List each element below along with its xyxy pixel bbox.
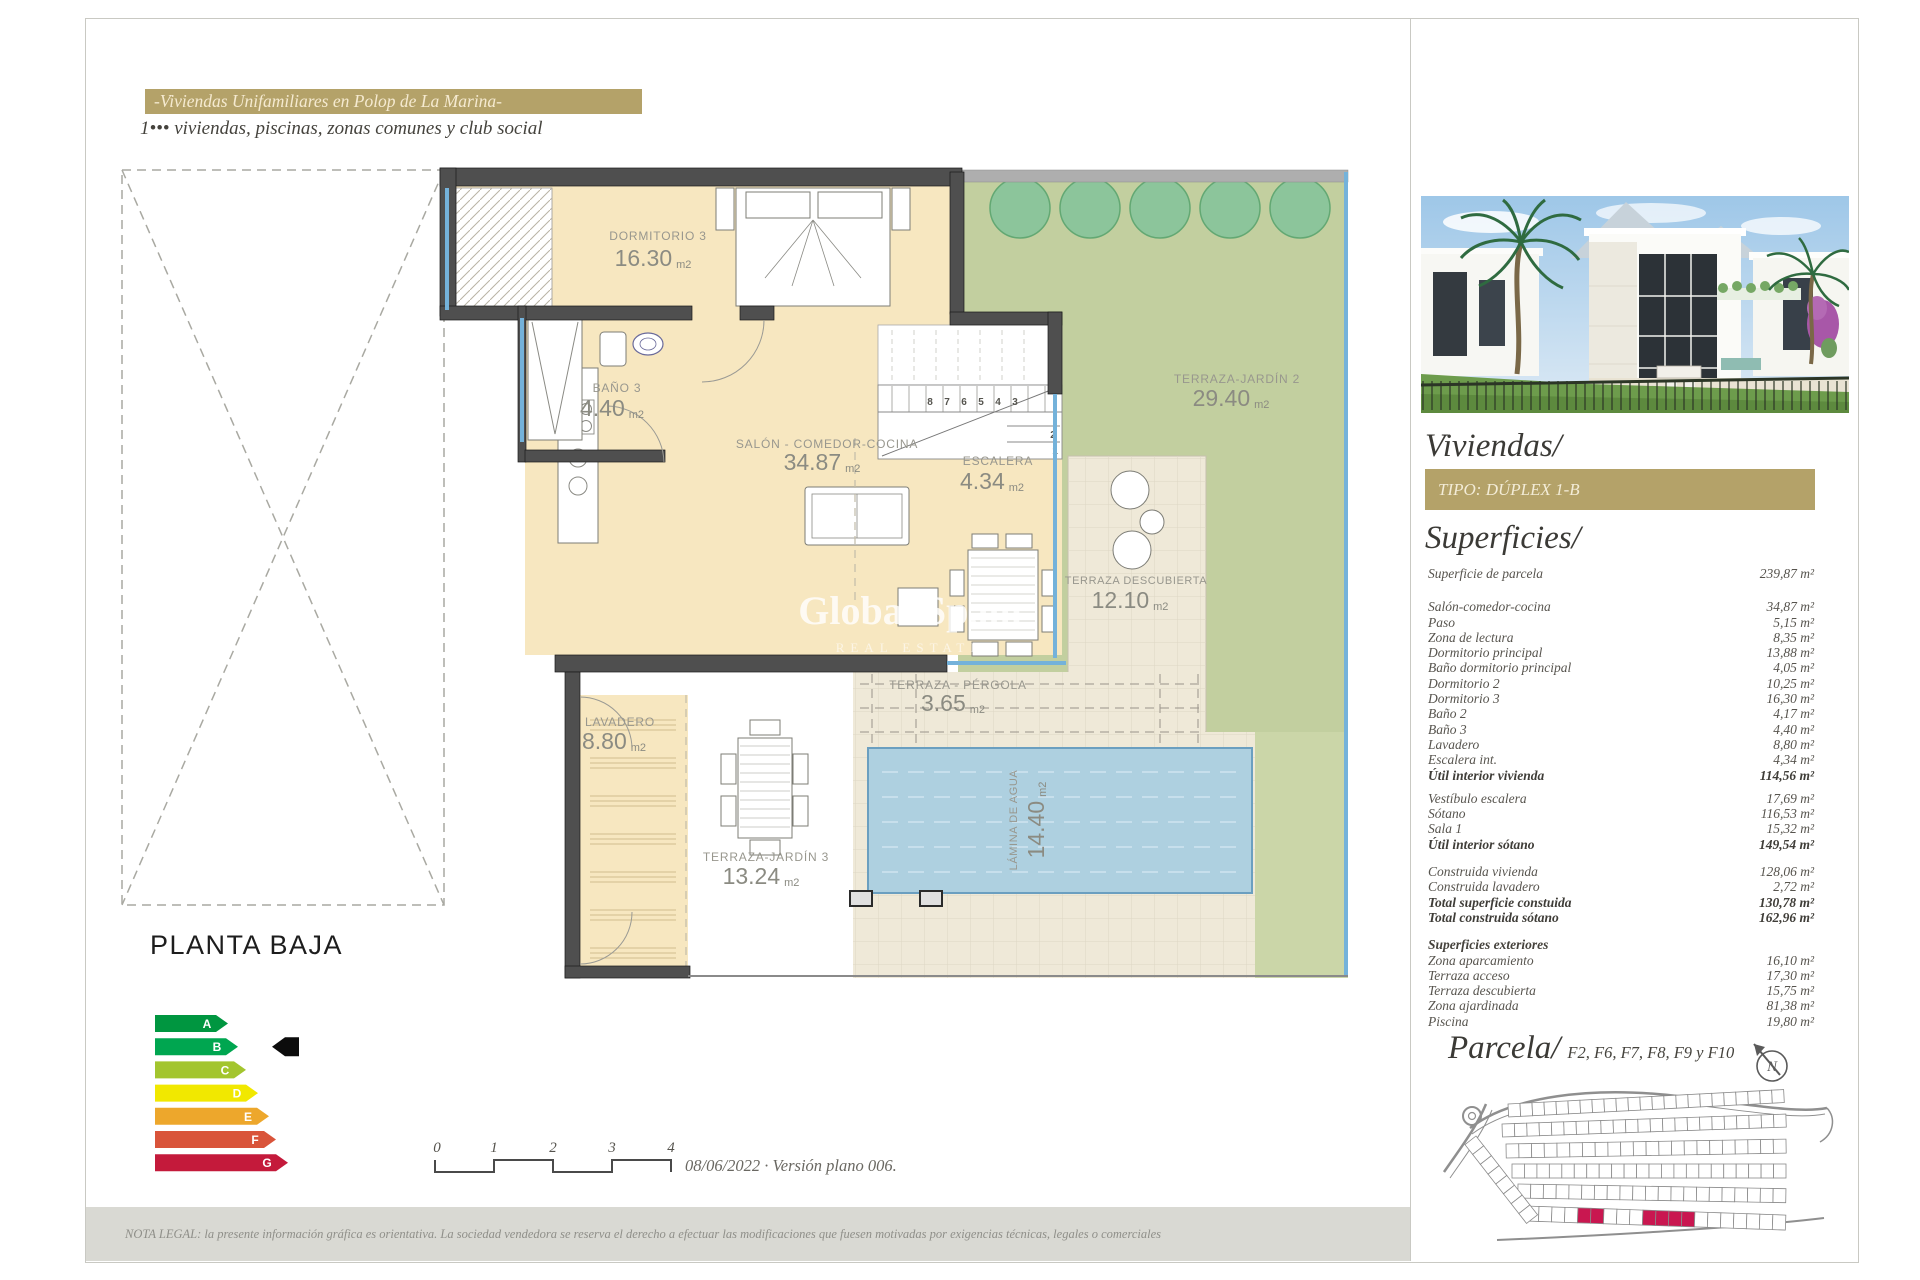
- plot-cell: [1588, 1121, 1601, 1134]
- plot-cell: [1607, 1186, 1620, 1200]
- surface-value: 19,80 m²: [1766, 1014, 1814, 1029]
- stair-number: 6: [961, 397, 967, 408]
- plot-cell: [1696, 1187, 1709, 1201]
- plot-cell: [1761, 1115, 1774, 1128]
- plot-cell: [1759, 1214, 1773, 1229]
- room-label: BAÑO 3: [593, 381, 642, 395]
- plot-cell: [1580, 1100, 1593, 1114]
- plot-cell: [1519, 1144, 1532, 1158]
- plot-band: [1502, 1114, 1786, 1137]
- stair-number: 7: [944, 397, 950, 408]
- surface-row: Vestíbulo escalera17,69 m²: [1428, 791, 1814, 806]
- energy-letter: C: [221, 1063, 230, 1077]
- surface-value: 116,53 m²: [1761, 806, 1814, 821]
- surface-row: Total superficie constuida130,78 m²: [1428, 895, 1814, 910]
- surface-label: Construida lavadero: [1428, 879, 1540, 894]
- surface-row: Sala 115,32 m²: [1428, 821, 1814, 836]
- plot-cell-highlighted: [1668, 1211, 1682, 1226]
- plot-cell: [1524, 1164, 1536, 1178]
- plot-cell: [1624, 1164, 1636, 1178]
- plot-cell: [1556, 1185, 1569, 1199]
- plot-cell: [1633, 1142, 1646, 1156]
- plot-cell: [1638, 1119, 1651, 1132]
- plot-cell: [1773, 1139, 1786, 1153]
- surface-value: 17,69 m²: [1766, 791, 1814, 806]
- plot-cell: [1676, 1095, 1689, 1109]
- plot-cell: [1722, 1140, 1735, 1154]
- garden-trees: [990, 178, 1330, 238]
- plot-cell: [1736, 1115, 1749, 1128]
- plot-cell: [1709, 1187, 1722, 1201]
- plot-cell: [1604, 1098, 1617, 1112]
- pergola-post: [920, 891, 942, 906]
- plot-cell: [1661, 1164, 1673, 1178]
- plot-cell-highlighted: [1655, 1211, 1669, 1226]
- svg-text:Global Spain: Global Spain: [798, 588, 1021, 633]
- plot-cell: [1502, 1124, 1515, 1137]
- surface-value: 16,10 m²: [1766, 953, 1814, 968]
- plot-cell: [1582, 1185, 1595, 1199]
- plot-cell: [1543, 1184, 1556, 1198]
- surface-value: 4,05 m²: [1773, 660, 1814, 675]
- villa-render-image: [1421, 196, 1849, 413]
- plot-cell: [1772, 1090, 1785, 1104]
- room-label: LÁMINA DE AGUA: [1007, 770, 1020, 871]
- plot-cell: [1687, 1117, 1700, 1130]
- stair-number: 5: [978, 397, 984, 408]
- energy-letter: A: [203, 1017, 212, 1031]
- surface-value: 239,87 m²: [1760, 566, 1814, 581]
- superficies-title: Superficies/: [1425, 520, 1581, 557]
- stair-number: 3: [1012, 397, 1018, 408]
- energy-letter: E: [244, 1110, 252, 1124]
- plot-cell: [1574, 1164, 1586, 1178]
- plot-cell: [1532, 1102, 1545, 1116]
- plot-cell-highlighted: [1681, 1211, 1695, 1226]
- surface-group-header: Superficies exteriores: [1428, 937, 1814, 952]
- plot-cell: [1712, 1116, 1725, 1129]
- plot-cell: [1625, 1119, 1638, 1132]
- plot-cell: [1570, 1143, 1583, 1157]
- room-label: TERRAZA-JARDÍN 2: [1174, 371, 1300, 386]
- surface-label: Zona de lectura: [1428, 630, 1514, 645]
- version-caption: 08/06/2022 · Versión plano 006.: [685, 1156, 897, 1175]
- surface-label: Útil interior sótano: [1428, 837, 1535, 852]
- wardrobe: [456, 188, 552, 312]
- surface-row: Dormitorio 210,25 m²: [1428, 676, 1814, 691]
- room-label: TERRAZA DESCUBIERTA: [1065, 575, 1207, 587]
- plot-cell: [1707, 1212, 1721, 1227]
- plot-cell: [1688, 1094, 1701, 1108]
- surface-label: Baño dormitorio principal: [1428, 660, 1571, 675]
- surface-row: Terraza acceso17,30 m²: [1428, 968, 1814, 983]
- surface-value: 149,54 m²: [1759, 837, 1814, 852]
- plot-cell: [1684, 1141, 1697, 1155]
- plot-cell: [1711, 1164, 1723, 1178]
- energy-letter: F: [251, 1133, 258, 1147]
- plot-cell: [1551, 1122, 1564, 1135]
- energy-letter: D: [233, 1087, 242, 1101]
- surface-label: Dormitorio 2: [1428, 676, 1500, 691]
- plot-cell: [1761, 1164, 1773, 1178]
- surface-value: 81,38 m²: [1766, 998, 1814, 1013]
- plot-cell: [1557, 1143, 1570, 1157]
- plot-cell: [1599, 1164, 1611, 1178]
- surface-row: Piscina19,80 m²: [1428, 1014, 1814, 1029]
- plot-cell: [1629, 1210, 1643, 1225]
- energy-arrow-B: [155, 1038, 238, 1055]
- surface-label: Paso: [1428, 615, 1455, 630]
- parcela-heading: Parcela/ F2, F6, F7, F8, F9 y F10: [1448, 1030, 1734, 1067]
- plot-cell: [1640, 1096, 1653, 1110]
- plot-cell: [1724, 1092, 1737, 1106]
- scale-tick: 1: [490, 1140, 498, 1156]
- plot-cell-highlighted: [1590, 1208, 1604, 1223]
- pergola-post: [850, 891, 872, 906]
- plot-cell: [1735, 1140, 1748, 1154]
- scale-tick: 0: [433, 1140, 441, 1156]
- plot-cell: [1564, 1207, 1578, 1222]
- energy-arrow-A: [155, 1015, 228, 1032]
- plot-cell: [1539, 1122, 1552, 1135]
- scale-tick: 4: [667, 1140, 675, 1156]
- plot-cell: [1694, 1212, 1708, 1227]
- plot-cell: [1749, 1164, 1761, 1178]
- surface-value: 128,06 m²: [1760, 864, 1814, 879]
- plot-cell: [1576, 1121, 1589, 1134]
- plot-cell: [1594, 1185, 1607, 1199]
- plot-cell: [1506, 1144, 1519, 1158]
- type-badge: TIPO: DÚPLEX 1-B: [1425, 469, 1815, 510]
- surface-label: Lavadero: [1428, 737, 1479, 752]
- scale-tick: 3: [607, 1140, 616, 1156]
- adjacent-plot-outline: [122, 170, 444, 905]
- surface-row: Baño 24,17 m²: [1428, 706, 1814, 721]
- plot-cell: [1684, 1187, 1697, 1201]
- plot-cell: [1659, 1141, 1672, 1155]
- surface-value: 15,32 m²: [1766, 821, 1814, 836]
- plot-band: [1512, 1164, 1786, 1178]
- plot-cell: [1520, 1103, 1533, 1117]
- surface-row: Dormitorio principal13,88 m²: [1428, 645, 1814, 660]
- surface-label: Piscina: [1428, 1014, 1469, 1029]
- plot-cell-highlighted: [1577, 1208, 1591, 1223]
- plot-cell: [1616, 1098, 1629, 1112]
- surface-value: 15,75 m²: [1766, 983, 1814, 998]
- surface-value: 17,30 m²: [1766, 968, 1814, 983]
- surfaces-table: Superficie de parcela239,87 m²Salón-come…: [1428, 566, 1814, 1042]
- plot-cell: [1772, 1215, 1786, 1230]
- plot-cell: [1612, 1164, 1624, 1178]
- plot-cell: [1697, 1140, 1710, 1154]
- floor-plan: 8 7 6 5 4 3 2 1: [120, 160, 1360, 980]
- surface-label: Vestíbulo escalera: [1428, 791, 1527, 806]
- surface-label: Construida vivienda: [1428, 864, 1538, 879]
- sidebar-title: Viviendas/: [1425, 428, 1562, 465]
- plot-cell: [1531, 1184, 1544, 1198]
- room-area: 13.24m2: [723, 863, 800, 889]
- plot-cell: [1773, 1188, 1786, 1202]
- surface-row: Paso5,15 m²: [1428, 615, 1814, 630]
- plot-cell: [1650, 1118, 1663, 1131]
- plot-cell: [1544, 1143, 1557, 1157]
- surface-row: Zona aparcamiento16,10 m²: [1428, 953, 1814, 968]
- surface-value: 5,15 m²: [1773, 615, 1814, 630]
- plot-cell: [1649, 1164, 1661, 1178]
- surface-value: 130,78 m²: [1759, 895, 1814, 910]
- surface-row: Útil interior sótano149,54 m²: [1428, 837, 1814, 852]
- surface-row: Construida lavadero2,72 m²: [1428, 879, 1814, 894]
- energy-arrow-D: [155, 1085, 258, 1102]
- stair-number: 4: [995, 397, 1001, 408]
- plot-cell: [1722, 1188, 1735, 1202]
- plot-cell: [1628, 1097, 1641, 1111]
- room-label: ESCALERA: [963, 454, 1033, 468]
- plot-cell: [1544, 1101, 1557, 1115]
- plot-cell: [1620, 1186, 1633, 1200]
- plot-cell: [1582, 1142, 1595, 1156]
- plot-cell: [1531, 1143, 1544, 1157]
- surface-label: Terraza acceso: [1428, 968, 1510, 983]
- surface-row: Zona de lectura8,35 m²: [1428, 630, 1814, 645]
- room-label: LAVADERO: [585, 715, 655, 729]
- plot-cell: [1736, 1164, 1748, 1178]
- energy-letter: B: [213, 1040, 222, 1054]
- scale-bar: 0 1 2 3 4 08/06/2022 · Versión plano 006…: [430, 1138, 990, 1180]
- surface-row: Construida vivienda128,06 m²: [1428, 864, 1814, 879]
- plot-cell: [1603, 1209, 1617, 1224]
- parcela-title: Parcela/: [1448, 1030, 1560, 1067]
- plot-cell: [1724, 1116, 1737, 1129]
- scale-tick: 2: [549, 1140, 557, 1156]
- plot-cell: [1658, 1186, 1671, 1200]
- plot-cell-highlighted: [1642, 1210, 1656, 1225]
- plot-cell: [1774, 1164, 1786, 1178]
- legal-bar: NOTA LEGAL: la presente información gráf…: [86, 1207, 1410, 1261]
- panel-separator: [1410, 18, 1411, 1261]
- surface-value: 4,34 m²: [1773, 752, 1814, 767]
- legal-text: NOTA LEGAL: la presente información gráf…: [86, 1207, 1410, 1261]
- surface-label: Superficie de parcela: [1428, 566, 1543, 581]
- surface-label: Total construida sótano: [1428, 910, 1559, 925]
- plot-cell: [1699, 1117, 1712, 1130]
- surface-row: Salón-comedor-cocina34,87 m²: [1428, 599, 1814, 614]
- plot-cell: [1562, 1164, 1574, 1178]
- energy-letter: G: [262, 1156, 271, 1170]
- plot-cell: [1556, 1101, 1569, 1115]
- plot-cell: [1538, 1206, 1552, 1221]
- plot-cell: [1675, 1118, 1688, 1131]
- surface-value: 34,87 m²: [1766, 599, 1814, 614]
- plot-cell: [1748, 1091, 1761, 1105]
- energy-rating-chart: ABCDEFG: [120, 1005, 460, 1195]
- plot-cell: [1686, 1164, 1698, 1178]
- surface-value: 8,35 m²: [1773, 630, 1814, 645]
- plot-cell: [1662, 1118, 1675, 1131]
- surface-value: 8,80 m²: [1773, 737, 1814, 752]
- plot-cell: [1595, 1142, 1608, 1156]
- plot-cell: [1512, 1164, 1524, 1178]
- surface-label: Salón-comedor-cocina: [1428, 599, 1551, 614]
- surface-label: Total superficie constuida: [1428, 895, 1572, 910]
- plot-cell: [1760, 1188, 1773, 1202]
- surface-value: 4,17 m²: [1773, 706, 1814, 721]
- energy-marker: [272, 1037, 299, 1056]
- left-villa: [1421, 248, 1543, 376]
- surface-label: Sala 1: [1428, 821, 1462, 836]
- surface-row: Zona ajardinada81,38 m²: [1428, 998, 1814, 1013]
- plot-cell: [1652, 1096, 1665, 1110]
- parcela-subtitle: F2, F6, F7, F8, F9 y F10: [1567, 1043, 1734, 1063]
- plot-cell: [1601, 1120, 1614, 1133]
- toilet: [600, 332, 626, 366]
- plot-cell: [1700, 1093, 1713, 1107]
- svg-text:REAL ESTATE: REAL ESTATE: [836, 640, 985, 655]
- surface-value: 10,25 m²: [1766, 676, 1814, 691]
- surface-group: Construida vivienda128,06 m²Construida l…: [1428, 864, 1814, 925]
- surface-label: Zona aparcamiento: [1428, 953, 1534, 968]
- plot-cell: [1621, 1142, 1634, 1156]
- stair-number: 8: [927, 397, 933, 408]
- plot-cell: [1645, 1186, 1658, 1200]
- surface-row: Útil interior vivienda114,56 m²: [1428, 768, 1814, 783]
- type-badge-label: TIPO: DÚPLEX 1-B: [1425, 469, 1815, 510]
- surface-label: Dormitorio 3: [1428, 691, 1500, 706]
- surface-value: 16,30 m²: [1766, 691, 1814, 706]
- plot-cell: [1760, 1090, 1773, 1104]
- project-title-bar: -Viviendas Unifamiliares en Polop de La …: [145, 89, 642, 114]
- plot-band: [1518, 1184, 1786, 1203]
- sink: [633, 333, 663, 355]
- surface-label: Útil interior vivienda: [1428, 768, 1544, 783]
- surface-row: Terraza descubierta15,75 m²: [1428, 983, 1814, 998]
- room-label: DORMITORIO 3: [609, 229, 706, 243]
- plot-cell: [1587, 1164, 1599, 1178]
- surface-value: 2,72 m²: [1773, 879, 1814, 894]
- surface-label: Zona ajardinada: [1428, 998, 1519, 1013]
- surface-row: Total construida sótano162,96 m²: [1428, 910, 1814, 925]
- surface-value: 162,96 m²: [1759, 910, 1814, 925]
- surface-group: Vestíbulo escalera17,69 m²Sótano116,53 m…: [1428, 791, 1814, 852]
- surface-value: 4,40 m²: [1773, 722, 1814, 737]
- plot-cell: [1527, 1123, 1540, 1136]
- plot-band: [1525, 1206, 1785, 1230]
- surface-group: Salón-comedor-cocina34,87 m²Paso5,15 m²Z…: [1428, 599, 1814, 783]
- plot-cell: [1646, 1141, 1659, 1155]
- site-map: [1442, 1076, 1842, 1252]
- shower: [528, 318, 582, 440]
- plan-title: PLANTA BAJA: [150, 930, 343, 961]
- plot-cell: [1748, 1140, 1761, 1154]
- surface-row: Baño 34,40 m²: [1428, 722, 1814, 737]
- plot-cell: [1633, 1186, 1646, 1200]
- surface-label: Sótano: [1428, 806, 1466, 821]
- surface-row: Dormitorio 316,30 m²: [1428, 691, 1814, 706]
- surface-label: Baño 3: [1428, 722, 1467, 737]
- plot-cell: [1749, 1115, 1762, 1128]
- surface-value: 114,56 m²: [1760, 768, 1814, 783]
- plot-cell: [1564, 1121, 1577, 1134]
- surface-label: Terraza descubierta: [1428, 983, 1536, 998]
- plot-cell: [1710, 1140, 1723, 1154]
- project-title: -Viviendas Unifamiliares en Polop de La …: [145, 89, 642, 114]
- project-subtitle: 1••• viviendas, piscinas, zonas comunes …: [140, 118, 543, 140]
- plot-cell: [1746, 1214, 1760, 1229]
- plot-cell: [1508, 1103, 1521, 1117]
- plot-cell: [1592, 1099, 1605, 1113]
- plot-cell: [1637, 1164, 1649, 1178]
- plot-cell: [1720, 1213, 1734, 1228]
- surface-label: Dormitorio principal: [1428, 645, 1542, 660]
- plot-cell: [1549, 1164, 1561, 1178]
- surface-row: Sótano116,53 m²: [1428, 806, 1814, 821]
- plot-cell: [1613, 1120, 1626, 1133]
- plot-cell: [1514, 1123, 1527, 1136]
- surface-row: Baño dormitorio principal4,05 m²: [1428, 660, 1814, 675]
- plot-cell: [1608, 1142, 1621, 1156]
- energy-arrow-C: [155, 1061, 246, 1078]
- plot-cell: [1537, 1164, 1549, 1178]
- surface-row: Superficie de parcela239,87 m²: [1428, 566, 1814, 581]
- plot-cell: [1699, 1164, 1711, 1178]
- surface-label: Baño 2: [1428, 706, 1467, 721]
- surface-row: Escalera int.4,34 m²: [1428, 752, 1814, 767]
- plot-cell: [1671, 1187, 1684, 1201]
- plot-cell: [1712, 1093, 1725, 1107]
- plot-cell: [1569, 1185, 1582, 1199]
- plot-cell: [1735, 1188, 1748, 1202]
- plot-cell: [1747, 1188, 1760, 1202]
- surface-label: Escalera int.: [1428, 752, 1497, 767]
- plot-cell: [1551, 1207, 1565, 1222]
- surface-value: 13,88 m²: [1766, 645, 1814, 660]
- plot-cell: [1724, 1164, 1736, 1178]
- surface-row: Lavadero8,80 m²: [1428, 737, 1814, 752]
- room-label: TERRAZA-JARDÍN 3: [703, 849, 829, 864]
- bed: [716, 188, 910, 306]
- pool: LÁMINA DE AGUA 14.40m2: [868, 748, 1252, 893]
- plot-cell: [1736, 1091, 1749, 1105]
- plot-cell: [1568, 1100, 1581, 1114]
- plot-cell: [1733, 1213, 1747, 1228]
- plot-cell: [1671, 1141, 1684, 1155]
- plot-cell: [1761, 1139, 1774, 1153]
- sofa: [805, 487, 909, 545]
- surface-group: Superficies exterioresZona aparcamiento1…: [1428, 937, 1814, 1029]
- plot-cell: [1773, 1114, 1786, 1127]
- surface-group: Superficie de parcela239,87 m²: [1428, 566, 1814, 581]
- plot-cell: [1664, 1095, 1677, 1109]
- plot-cell: [1616, 1209, 1630, 1224]
- plot-cell: [1674, 1164, 1686, 1178]
- plot-band: [1506, 1139, 1786, 1158]
